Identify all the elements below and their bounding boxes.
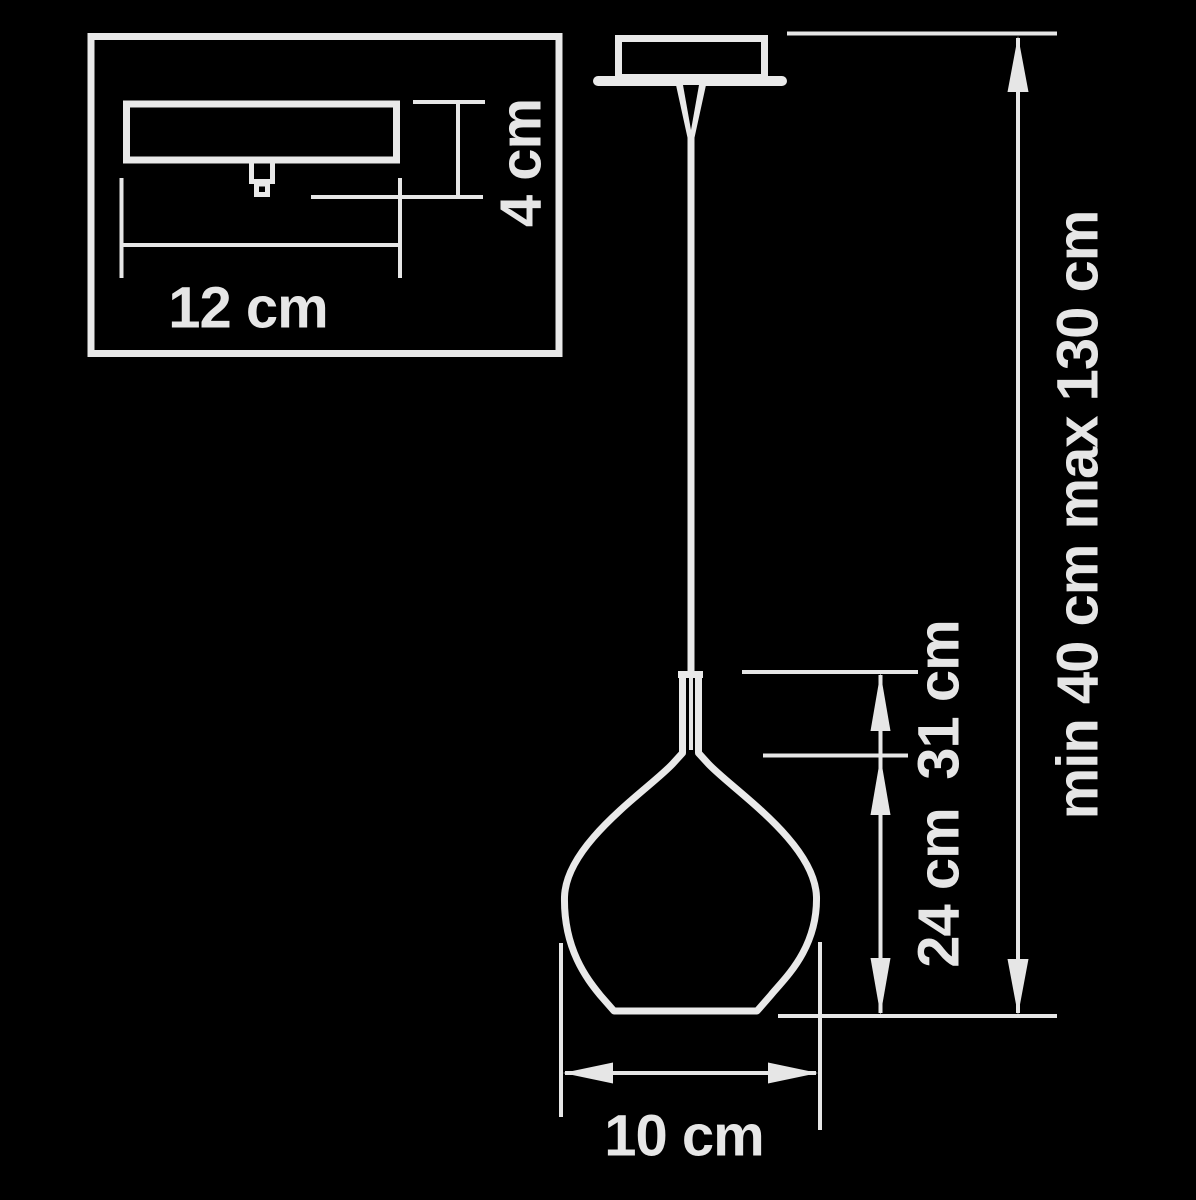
canopy-side-view [127,104,397,160]
arrowhead-down-shared [871,958,891,1015]
arrowhead-right [768,1063,818,1084]
canopy-detail-inset: 12 cm 4 cm [91,37,559,354]
arrowhead-down [1008,959,1029,1015]
shade-body-height-label: 24 cm [907,808,972,967]
arrowhead-up-31 [871,673,891,731]
suspension-wire [688,138,695,674]
shade-total-height-label: 31 cm [907,620,972,779]
dimension-annotations: min 40 cm max 130 cm 31 cm 24 cm 10 cm [561,34,1111,1169]
suspension-range-label: min 40 cm max 130 cm [1046,211,1111,820]
pendant-front-view [564,39,816,1012]
diagram-canvas: 12 cm 4 cm min 40 cm max 130 cm 31 cm 24… [0,0,1196,1200]
arrowhead-left [563,1063,613,1084]
arrowhead-up [1008,36,1029,92]
shade-diameter-label: 10 cm [604,1104,763,1169]
inset-dimension-lines [120,102,486,278]
canopy-height-label: 4 cm [489,99,554,227]
pendant-dimension-diagram: 12 cm 4 cm min 40 cm max 130 cm 31 cm 24… [0,0,1196,1200]
canopy-socket-nub [257,184,268,195]
ceiling-plate [593,76,787,86]
canopy-socket [252,162,273,182]
canopy-body [619,39,765,78]
arrowhead-up-24 [871,757,891,815]
canopy-width-label: 12 cm [168,276,327,341]
